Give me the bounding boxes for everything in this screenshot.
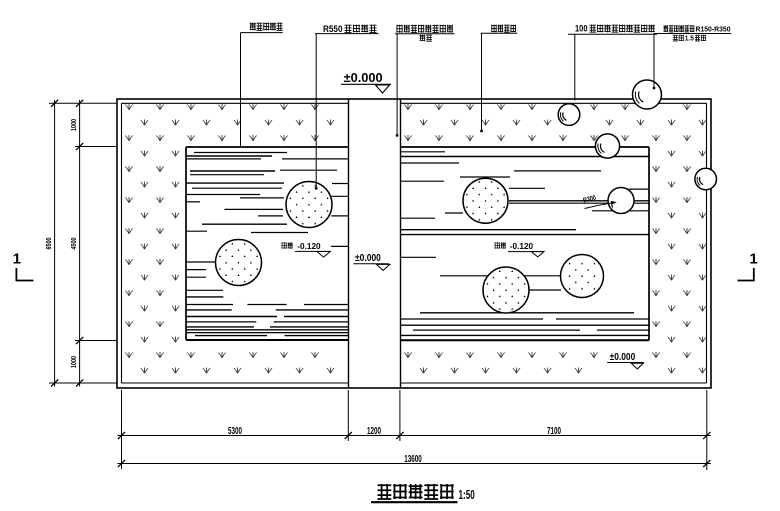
svg-text:4500: 4500 [69, 237, 78, 249]
svg-text:5300: 5300 [228, 426, 242, 437]
svg-text:1200: 1200 [367, 426, 381, 437]
svg-text:1000: 1000 [69, 119, 78, 131]
svg-text:-0.120: -0.120 [297, 241, 321, 251]
svg-text:1.5: 1.5 [685, 33, 695, 42]
svg-text:±0.000: ±0.000 [344, 70, 383, 85]
svg-text:-0.120: -0.120 [510, 241, 534, 251]
svg-text:R150-R350: R150-R350 [696, 24, 731, 33]
svg-text:1: 1 [749, 251, 757, 268]
svg-text:±0.000: ±0.000 [610, 352, 636, 363]
svg-text:1: 1 [13, 251, 21, 268]
svg-text:1000: 1000 [69, 356, 78, 368]
svg-text:100: 100 [575, 24, 588, 34]
svg-text:1:50: 1:50 [459, 488, 475, 502]
svg-text:6500: 6500 [44, 237, 53, 249]
svg-text:±0.000: ±0.000 [355, 253, 381, 264]
svg-text:13600: 13600 [404, 454, 422, 465]
svg-text:7100: 7100 [547, 426, 561, 437]
